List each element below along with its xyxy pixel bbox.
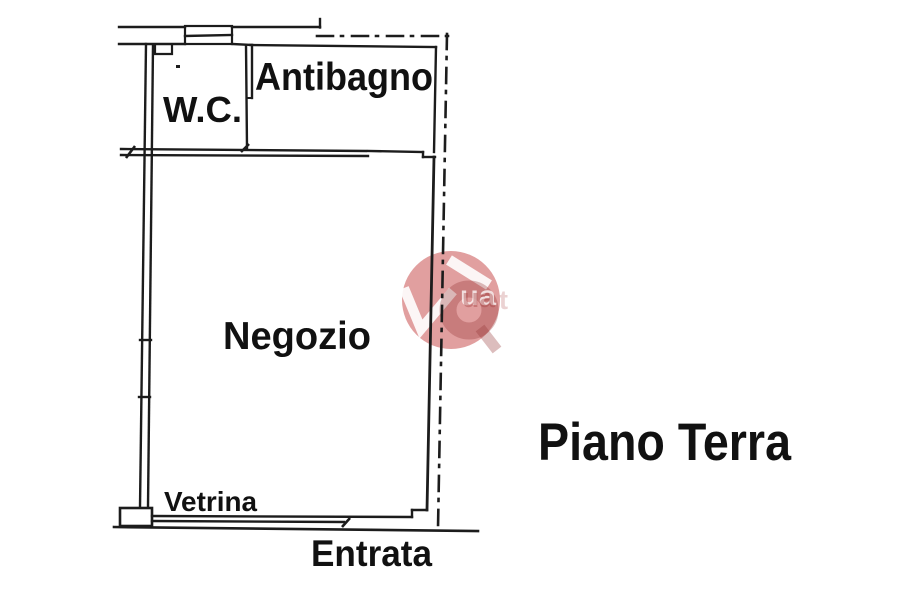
- svg-text:W.C.: W.C.: [163, 89, 242, 130]
- svg-text:ua: ua: [462, 283, 496, 313]
- svg-text:t: t: [499, 285, 508, 315]
- svg-text:Entrata: Entrata: [311, 533, 432, 574]
- svg-text:Piano Terra: Piano Terra: [538, 413, 791, 472]
- svg-text:Antibagno: Antibagno: [255, 56, 433, 99]
- svg-text:Negozio: Negozio: [223, 315, 371, 358]
- svg-text:Vetrina: Vetrina: [164, 486, 257, 517]
